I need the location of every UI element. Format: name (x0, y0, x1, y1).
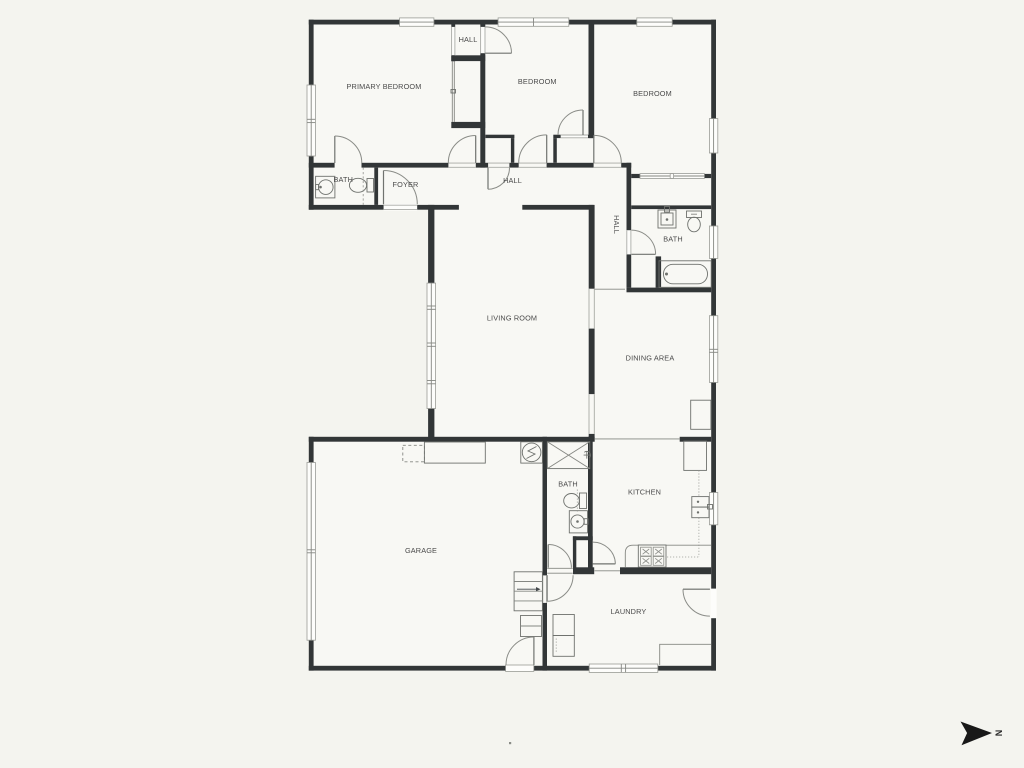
svg-text:BATH: BATH (663, 234, 683, 243)
svg-text:BEDROOM: BEDROOM (518, 77, 557, 86)
svg-text:HALL: HALL (503, 176, 522, 185)
svg-text:LIVING ROOM: LIVING ROOM (487, 313, 537, 322)
svg-text:BEDROOM: BEDROOM (633, 89, 672, 98)
svg-text:N: N (994, 730, 1004, 737)
svg-text:HALL: HALL (459, 35, 478, 44)
svg-text:LAUNDRY: LAUNDRY (611, 607, 647, 616)
svg-text:BATH: BATH (334, 175, 354, 184)
svg-text:BATH: BATH (558, 479, 578, 488)
svg-text:FOYER: FOYER (393, 180, 419, 189)
svg-text:HALL: HALL (612, 215, 621, 234)
svg-text:GARAGE: GARAGE (405, 546, 437, 555)
svg-text:KITCHEN: KITCHEN (628, 487, 661, 496)
svg-text:DINING AREA: DINING AREA (626, 354, 675, 363)
svg-text:PRIMARY BEDROOM: PRIMARY BEDROOM (347, 82, 422, 91)
